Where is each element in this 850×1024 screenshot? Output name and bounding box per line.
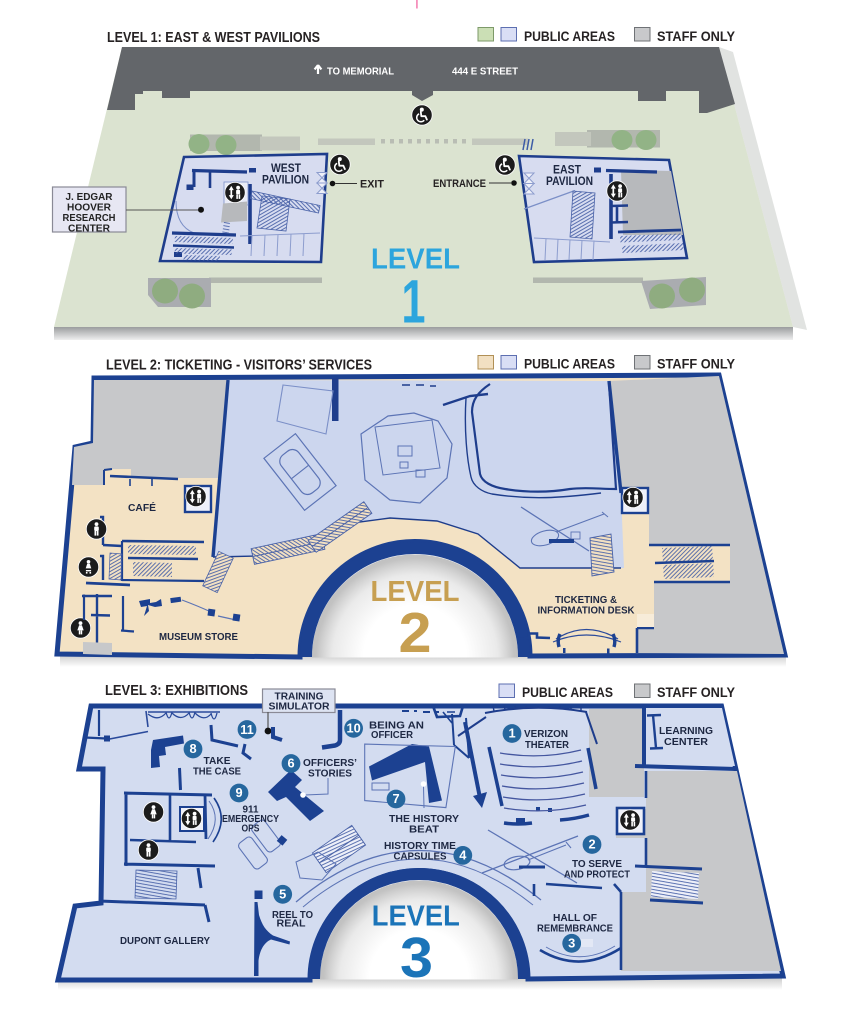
svg-text:STAFF ONLY: STAFF ONLY xyxy=(657,29,735,44)
svg-text:3: 3 xyxy=(400,926,433,990)
svg-text:EXIT: EXIT xyxy=(360,179,384,191)
svg-text:STAFF ONLY: STAFF ONLY xyxy=(657,357,735,372)
svg-text:AND PROTECT: AND PROTECT xyxy=(564,870,630,881)
svg-text:6: 6 xyxy=(287,756,294,771)
svg-text:CENTER: CENTER xyxy=(664,737,709,748)
svg-text:REAL: REAL xyxy=(277,919,306,930)
svg-text:OFFICERS’: OFFICERS’ xyxy=(303,758,357,769)
svg-text:THE HISTORY: THE HISTORY xyxy=(389,814,459,825)
svg-text:PUBLIC AREAS: PUBLIC AREAS xyxy=(524,29,615,44)
svg-text:1: 1 xyxy=(508,726,515,741)
svg-text:5: 5 xyxy=(279,887,286,902)
svg-text:PUBLIC AREAS: PUBLIC AREAS xyxy=(522,685,613,700)
svg-text:CENTER: CENTER xyxy=(68,224,111,235)
svg-text:2: 2 xyxy=(399,601,432,665)
svg-text:REMEMBRANCE: REMEMBRANCE xyxy=(537,924,613,935)
svg-text:7: 7 xyxy=(392,791,399,806)
svg-text:J. EDGAR: J. EDGAR xyxy=(66,192,114,203)
svg-text:8: 8 xyxy=(189,741,196,756)
svg-text:3: 3 xyxy=(568,936,575,951)
svg-text:TO SERVE: TO SERVE xyxy=(572,859,622,870)
svg-text:PUBLIC AREAS: PUBLIC AREAS xyxy=(524,357,615,372)
svg-text:BEAT: BEAT xyxy=(409,825,439,836)
svg-text:VERIZON: VERIZON xyxy=(524,729,568,740)
svg-text:TICKETING &: TICKETING & xyxy=(555,595,617,606)
svg-text:STORIES: STORIES xyxy=(308,769,352,780)
svg-text:LEVEL 2: TICKETING - VISITORS’: LEVEL 2: TICKETING - VISITORS’ SERVICES xyxy=(106,358,372,374)
svg-text:CAPSULES: CAPSULES xyxy=(394,852,447,863)
svg-text:THE CASE: THE CASE xyxy=(193,767,241,778)
svg-text:OFFICER: OFFICER xyxy=(371,730,414,741)
svg-text:TO MEMORIAL: TO MEMORIAL xyxy=(327,66,395,78)
svg-text:RESEARCH: RESEARCH xyxy=(63,213,116,224)
svg-text:11: 11 xyxy=(240,722,254,737)
svg-text:HALL OF: HALL OF xyxy=(553,913,597,924)
svg-text:1: 1 xyxy=(402,268,426,336)
svg-text:9: 9 xyxy=(235,785,242,800)
svg-text:HISTORY TIME: HISTORY TIME xyxy=(384,841,456,852)
svg-text:ENTRANCE: ENTRANCE xyxy=(433,178,486,190)
svg-text:OPS: OPS xyxy=(242,824,260,835)
svg-text:4: 4 xyxy=(459,848,467,863)
svg-text:MUSEUM STORE: MUSEUM STORE xyxy=(159,632,238,643)
svg-text:SIMULATOR: SIMULATOR xyxy=(269,702,331,713)
svg-text:TAKE: TAKE xyxy=(204,756,231,767)
svg-text:THEATER: THEATER xyxy=(525,740,570,751)
svg-text:HOOVER: HOOVER xyxy=(67,203,112,214)
svg-text:444 E STREET: 444 E STREET xyxy=(452,66,519,78)
svg-text:10: 10 xyxy=(346,721,360,736)
svg-text:INFORMATION DESK: INFORMATION DESK xyxy=(538,606,636,617)
svg-text:DUPONT GALLERY: DUPONT GALLERY xyxy=(120,936,210,947)
svg-text:CAFÉ: CAFÉ xyxy=(128,501,156,514)
svg-text:2: 2 xyxy=(588,837,595,852)
svg-text:PAVILION: PAVILION xyxy=(262,173,309,187)
svg-text:LEARNING: LEARNING xyxy=(659,726,713,737)
svg-text:PAVILION: PAVILION xyxy=(546,174,593,188)
svg-text:STAFF ONLY: STAFF ONLY xyxy=(657,685,735,700)
svg-text:LEVEL 3: EXHIBITIONS: LEVEL 3: EXHIBITIONS xyxy=(105,683,248,699)
svg-text:LEVEL 1: EAST & WEST PAVILIONS: LEVEL 1: EAST & WEST PAVILIONS xyxy=(107,30,320,46)
